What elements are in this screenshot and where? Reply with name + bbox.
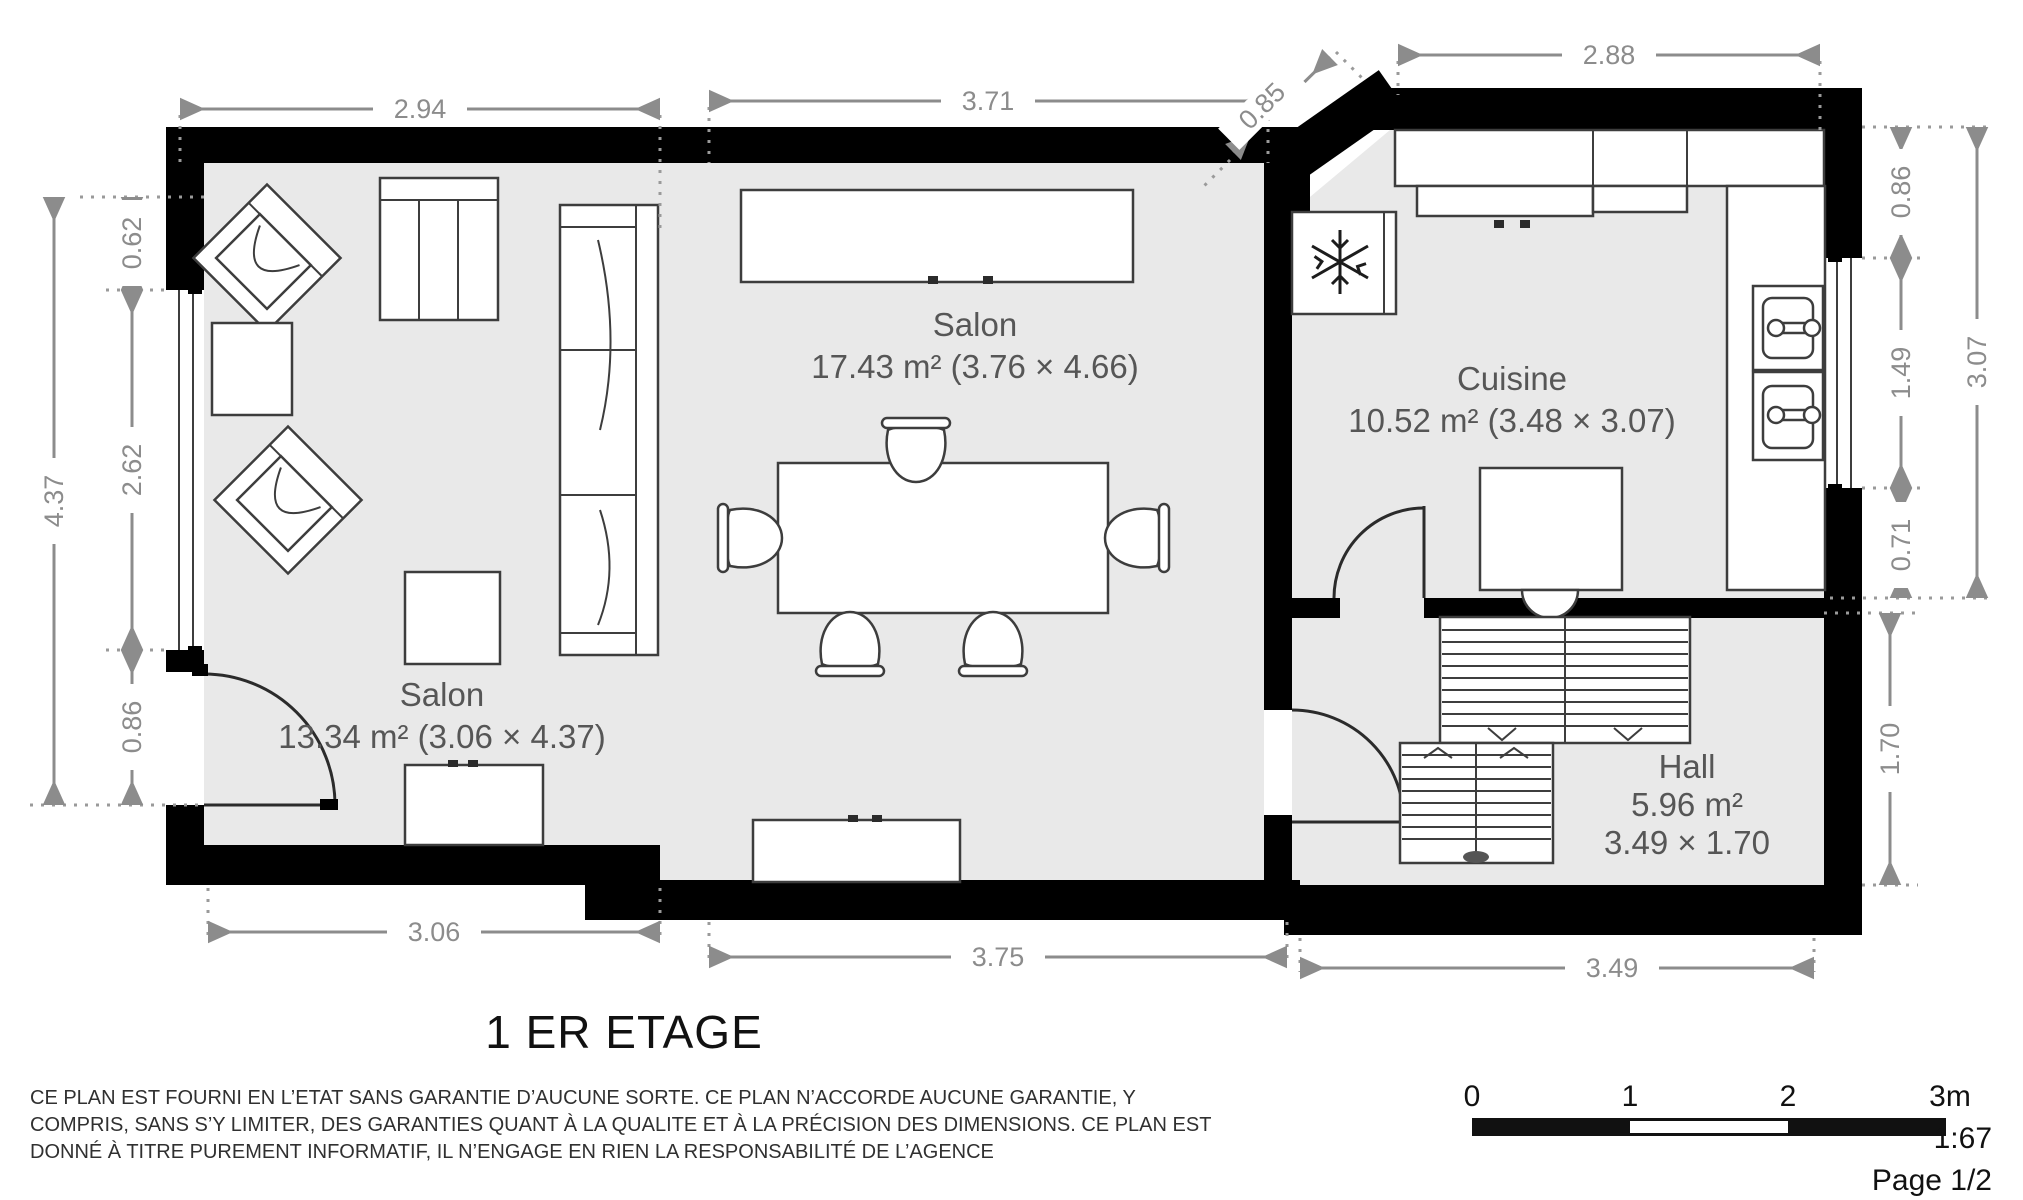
page-indicator: Page 1/2 bbox=[1872, 1164, 1992, 1197]
sideboard-bottom-left bbox=[405, 760, 543, 845]
dim-label: 4.37 bbox=[39, 475, 69, 528]
dim-label: 1.70 bbox=[1875, 723, 1905, 776]
room-name: Salon bbox=[400, 676, 484, 713]
dim-label: 0.86 bbox=[1886, 166, 1916, 219]
dim-label: 3.75 bbox=[972, 942, 1025, 972]
dim-label: 3.06 bbox=[408, 917, 461, 947]
scale-tick: 3m bbox=[1929, 1080, 1971, 1113]
dim-label: 3.07 bbox=[1962, 336, 1992, 389]
scale-tick: 2 bbox=[1780, 1080, 1797, 1113]
dim-label: 2.88 bbox=[1583, 40, 1636, 70]
side-table bbox=[212, 323, 292, 415]
coffee-table bbox=[405, 572, 500, 664]
wardrobe bbox=[380, 178, 498, 320]
window-left bbox=[166, 284, 204, 656]
room-area: 5.96 m² bbox=[1631, 786, 1743, 823]
dim-label: 0.86 bbox=[117, 701, 147, 754]
room-area: 17.43 m² (3.76 × 4.66) bbox=[811, 348, 1138, 385]
disclaimer-line: COMPRIS, SANS S’Y LIMITER, DES GARANTIES… bbox=[30, 1113, 1211, 1136]
room-area: 10.52 m² (3.48 × 3.07) bbox=[1348, 402, 1675, 439]
room-name: Hall bbox=[1659, 748, 1716, 785]
dim-label: 2.94 bbox=[394, 94, 447, 124]
room-area: 13.34 m² (3.06 × 4.37) bbox=[278, 718, 605, 755]
kitchen-sink bbox=[1753, 372, 1823, 460]
plan-title: 1 ER ETAGE bbox=[485, 1006, 763, 1058]
kitchen-sink bbox=[1753, 286, 1823, 370]
sofa bbox=[560, 205, 658, 655]
sideboard-top bbox=[741, 190, 1133, 284]
fridge bbox=[1292, 212, 1396, 314]
sideboard-bottom-center bbox=[753, 815, 960, 882]
scale-bar: 0 1 2 3m 1:67 Page 1/2 bbox=[1464, 1080, 1992, 1197]
dim-label: 2.62 bbox=[117, 444, 147, 497]
dim-label: 1.49 bbox=[1886, 347, 1916, 400]
room-name: Salon bbox=[933, 306, 1017, 343]
dim-label: 3.49 bbox=[1586, 953, 1639, 983]
disclaimer-line: CE PLAN EST FOURNI EN L’ETAT SANS GARANT… bbox=[30, 1087, 1136, 1109]
dim-label: 3.71 bbox=[962, 86, 1015, 116]
disclaimer: CE PLAN EST FOURNI EN L’ETAT SANS GARANT… bbox=[30, 1087, 1211, 1163]
scale-tick: 1 bbox=[1622, 1080, 1639, 1113]
room-name: Cuisine bbox=[1457, 360, 1567, 397]
window-right bbox=[1824, 252, 1862, 494]
floorplan-canvas: 2.94 3.71 2.88 0.85 0.62 2.62 0.86 bbox=[0, 0, 2023, 1200]
scale-bar-white-segment bbox=[1630, 1121, 1788, 1133]
room-dims: 3.49 × 1.70 bbox=[1604, 824, 1770, 861]
scale-ratio: 1:67 bbox=[1934, 1122, 1992, 1155]
staircase-lower bbox=[1400, 743, 1553, 863]
disclaimer-line: DONNÉ À TITRE PUREMENT INFORMATIF, IL N’… bbox=[30, 1140, 994, 1163]
dim-label: 0.71 bbox=[1886, 519, 1916, 572]
floorplan-page: 2.94 3.71 2.88 0.85 0.62 2.62 0.86 bbox=[0, 0, 2023, 1200]
dining-table bbox=[778, 463, 1108, 613]
staircase-upper bbox=[1440, 617, 1690, 743]
dim-label: 0.62 bbox=[117, 217, 147, 270]
scale-tick: 0 bbox=[1464, 1080, 1481, 1113]
